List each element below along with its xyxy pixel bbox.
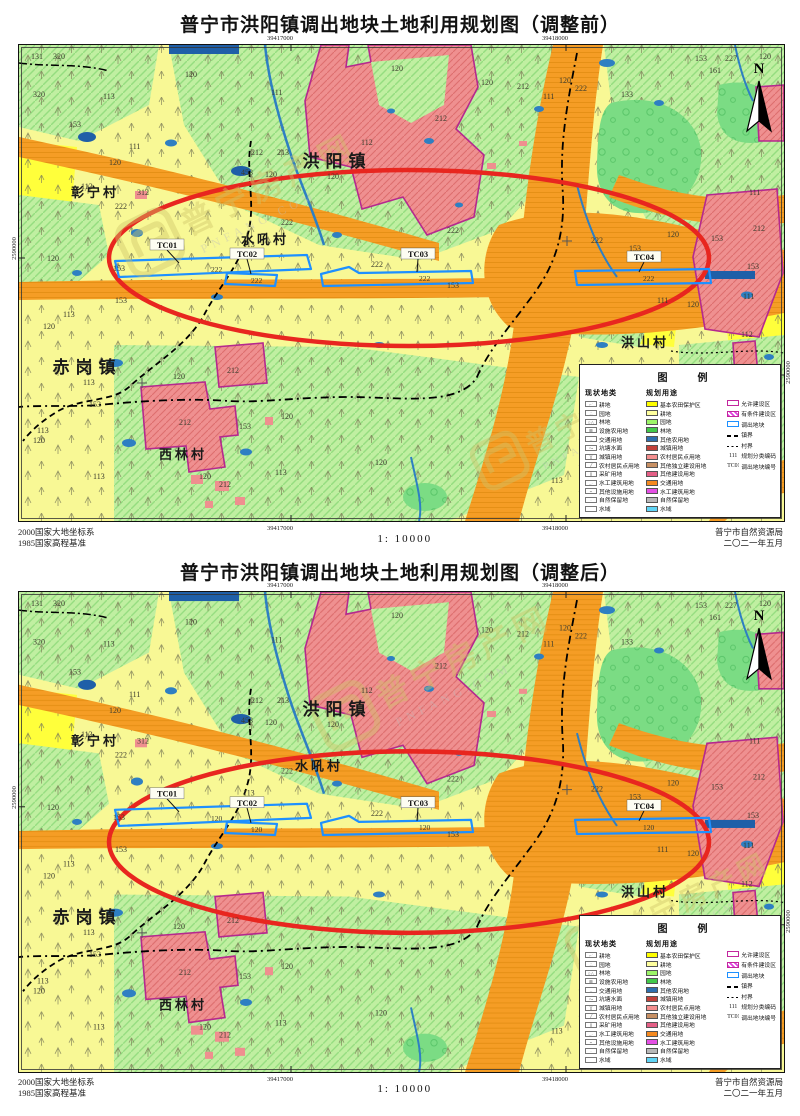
- svg-text:312: 312: [137, 736, 149, 745]
- planned-swatch: [646, 488, 658, 494]
- svg-text:111: 111: [743, 292, 754, 301]
- svg-text:212: 212: [251, 148, 263, 157]
- svg-text:113: 113: [37, 426, 49, 435]
- legend-item: ⌐˙耕地: [585, 400, 642, 409]
- planned-swatch: [646, 987, 658, 993]
- current-swatch: 〜: [585, 445, 597, 451]
- map2-title: 普宁市洪阳镇调出地块土地利用规划图（调整后）: [0, 558, 800, 585]
- svg-text:TC03: TC03: [408, 249, 428, 259]
- svg-text:120: 120: [281, 412, 293, 421]
- svg-text:113: 113: [63, 310, 75, 319]
- map1-footer: 2000国家大地坐标系1985国家高程基准 1: 10000 普宁市自然资源局二…: [18, 527, 783, 557]
- svg-text:212: 212: [435, 114, 447, 123]
- svg-text:153: 153: [115, 845, 127, 854]
- svg-text:111: 111: [657, 296, 668, 305]
- legend-item: 其他建设用地: [646, 470, 723, 479]
- legend-item: 园地: [646, 417, 723, 426]
- legend-item: 111规划分类编码: [727, 451, 776, 462]
- legend-item: ∴园地: [585, 960, 642, 969]
- legend-item: 调出地块: [727, 419, 776, 430]
- legend-item: ⌁其他设施用地: [585, 487, 642, 496]
- planned-swatch: [646, 1022, 658, 1028]
- svg-text:113: 113: [275, 1019, 287, 1028]
- outplot-swatch: [727, 421, 739, 427]
- planned-swatch: [646, 454, 658, 460]
- svg-text:227: 227: [725, 54, 737, 63]
- legend-item: 其他农用地: [646, 435, 723, 444]
- legend-item: –·水工建筑用地: [585, 478, 642, 487]
- planned-swatch: [646, 970, 658, 976]
- legend-item: 村界: [727, 440, 776, 451]
- current-swatch: ⌐˙: [585, 952, 597, 958]
- svg-text:120: 120: [687, 300, 699, 309]
- current-swatch: [585, 1057, 597, 1063]
- svg-text:113: 113: [243, 789, 255, 798]
- svg-text:120: 120: [185, 70, 197, 79]
- legend-item: 水域: [646, 504, 723, 513]
- planned-swatch: [646, 961, 658, 967]
- svg-text:TC01: TC01: [157, 789, 177, 799]
- planned-swatch: [646, 401, 658, 407]
- legend-code: TC01: [727, 463, 739, 469]
- svg-text:113: 113: [83, 378, 95, 387]
- svg-text:227: 227: [725, 601, 737, 610]
- legend-title: 图 例: [599, 369, 776, 384]
- svg-text:120: 120: [559, 76, 571, 85]
- svg-text:212: 212: [753, 773, 765, 782]
- svg-text:222: 222: [643, 274, 655, 283]
- current-swatch: ⌁: [585, 488, 597, 494]
- svg-text:113: 113: [63, 859, 75, 868]
- planned-swatch: [646, 480, 658, 486]
- svg-text:320: 320: [53, 52, 65, 61]
- current-swatch: ○△: [585, 419, 597, 425]
- svg-text:111: 111: [271, 88, 282, 97]
- legend-item: ○△林地: [585, 417, 642, 426]
- current-swatch: ∴: [585, 410, 597, 416]
- svg-text:120: 120: [667, 230, 679, 239]
- current-swatch: ⊞: [585, 427, 597, 433]
- svg-text:212: 212: [179, 968, 191, 977]
- svg-text:113: 113: [83, 928, 95, 937]
- legend-item: 其他独立建设用地: [646, 1012, 723, 1021]
- current-swatch: –: [585, 987, 597, 993]
- svg-text:120: 120: [185, 617, 197, 626]
- coord-y-right: 2590000: [785, 361, 792, 384]
- svg-text:120: 120: [211, 814, 222, 823]
- svg-text:120: 120: [199, 472, 211, 481]
- svg-text:120: 120: [559, 623, 571, 632]
- svg-text:洪山村: 洪山村: [621, 884, 669, 899]
- svg-text:120: 120: [47, 254, 59, 263]
- legend-title: 图 例: [599, 920, 776, 935]
- svg-text:153: 153: [695, 54, 707, 63]
- village-boundary-swatch: [727, 997, 739, 998]
- svg-text:153: 153: [89, 950, 101, 959]
- svg-text:西林村: 西林村: [159, 997, 207, 1012]
- coord-x-left-top: 39417000: [267, 582, 293, 589]
- svg-text:120: 120: [419, 823, 430, 832]
- svg-text:111: 111: [749, 188, 760, 197]
- legend-item: 林地: [646, 977, 723, 986]
- coord-y-left: 2590000: [11, 786, 18, 809]
- legend-box: 图 例现状地类⌐˙耕地∴园地○△林地⊞设施农用地–交通用地〜坑塘水面╳城镇用地╱…: [579, 915, 781, 1069]
- svg-text:312: 312: [137, 188, 149, 197]
- svg-text:153: 153: [711, 783, 723, 792]
- svg-text:222: 222: [447, 775, 459, 784]
- svg-text:111: 111: [657, 845, 668, 854]
- svg-text:213: 213: [277, 696, 289, 705]
- svg-text:N: N: [754, 608, 765, 624]
- legend-item: 交通用地: [646, 1029, 723, 1038]
- legend-box: 图 例现状地类⌐˙耕地∴园地○△林地⊞设施农用地–交通用地〜坑塘水面╳城镇用地╱…: [579, 364, 781, 518]
- scale-text: 1: 10000: [377, 1083, 432, 1095]
- legend-item: ·自然保留地: [585, 1047, 642, 1056]
- legend-item: ∥采矿用地: [585, 470, 642, 479]
- current-swatch: ╱: [585, 462, 597, 468]
- svg-text:水吼村: 水吼村: [241, 232, 289, 247]
- legend-item: 水域: [585, 1055, 642, 1064]
- svg-text:TC04: TC04: [634, 252, 655, 262]
- svg-text:111: 111: [543, 639, 554, 648]
- legend-item: ∴园地: [585, 409, 642, 418]
- svg-text:赤岗镇: 赤岗镇: [53, 907, 122, 927]
- svg-text:120: 120: [759, 599, 771, 608]
- svg-text:453: 453: [241, 716, 253, 725]
- legend-item: 交通用地: [646, 478, 723, 487]
- svg-text:212: 212: [227, 916, 239, 925]
- svg-text:西林村: 西林村: [159, 447, 207, 462]
- legend-item: 基本农田保护区: [646, 400, 723, 409]
- svg-text:彰宁村: 彰宁村: [71, 185, 119, 200]
- scale-text: 1: 10000: [377, 533, 432, 545]
- svg-text:120: 120: [759, 52, 771, 61]
- planned-swatch: [646, 506, 658, 512]
- svg-text:111: 111: [129, 142, 140, 151]
- svg-text:赤岗镇: 赤岗镇: [53, 357, 122, 377]
- planned-swatch: [646, 1048, 658, 1054]
- svg-text:120: 120: [667, 779, 679, 788]
- legend-item: TC01调出地块编号: [727, 461, 776, 472]
- svg-text:222: 222: [591, 785, 603, 794]
- planned-swatch: [646, 436, 658, 442]
- legend-item: 〜坑塘水面: [585, 444, 642, 453]
- svg-text:320: 320: [33, 637, 45, 646]
- svg-text:113: 113: [103, 639, 115, 648]
- planned-swatch: [646, 1005, 658, 1011]
- svg-text:111: 111: [749, 736, 760, 745]
- svg-text:213: 213: [277, 148, 289, 157]
- svg-text:120: 120: [481, 625, 493, 634]
- legend-code: 111: [727, 1004, 739, 1010]
- svg-text:120: 120: [251, 825, 262, 834]
- svg-text:TC03: TC03: [408, 798, 428, 808]
- current-swatch: ⌁: [585, 1039, 597, 1045]
- map1-frame: 222222222222普宁房产网PNFANG.COM普宁房产网PNFANG.C…: [18, 44, 785, 522]
- legend-item: 镇界: [727, 981, 776, 992]
- town-boundary-swatch: [727, 435, 739, 437]
- svg-text:N: N: [754, 61, 765, 77]
- coord-y-right: 2590000: [785, 911, 792, 934]
- legend-planned-header: 规划用途: [646, 388, 723, 398]
- svg-text:洪阳镇: 洪阳镇: [303, 699, 372, 719]
- svg-text:113: 113: [551, 476, 563, 485]
- legend-item: 有条件建设区: [727, 960, 776, 971]
- svg-text:111: 111: [271, 635, 282, 644]
- agency-text: 普宁市自然资源局二〇二一年五月: [715, 527, 783, 549]
- svg-text:212: 212: [227, 366, 239, 375]
- legend-item: 林地: [646, 426, 723, 435]
- legend-item: 〜坑塘水面: [585, 995, 642, 1004]
- svg-text:153: 153: [69, 120, 81, 129]
- svg-text:212: 212: [517, 629, 529, 638]
- legend-item: –交通用地: [585, 435, 642, 444]
- svg-text:120: 120: [47, 803, 59, 812]
- planned-swatch: [646, 497, 658, 503]
- svg-text:120: 120: [43, 322, 55, 331]
- legend-item: 111规划分类编码: [727, 1002, 776, 1013]
- planned-swatch: [646, 427, 658, 433]
- legend-item: 水工建筑用地: [646, 487, 723, 496]
- svg-text:153: 153: [747, 811, 759, 820]
- svg-text:111: 111: [129, 690, 140, 699]
- datum-text: 2000国家大地坐标系1985国家高程基准: [18, 527, 95, 549]
- svg-text:222: 222: [371, 260, 383, 269]
- legend-item: 村界: [727, 991, 776, 1002]
- legend-item: 调出地块: [727, 970, 776, 981]
- svg-text:320: 320: [33, 90, 45, 99]
- svg-text:120: 120: [43, 871, 55, 880]
- svg-text:120: 120: [265, 718, 277, 727]
- svg-text:113: 113: [275, 468, 287, 477]
- conditional-swatch: [727, 411, 739, 417]
- legend-item: 允许建设区: [727, 949, 776, 960]
- svg-text:113: 113: [93, 472, 105, 481]
- legend-item: 耕地: [646, 409, 723, 418]
- coord-x-right-top: 39418000: [542, 582, 568, 589]
- svg-text:222: 222: [419, 274, 431, 283]
- svg-text:120: 120: [281, 962, 293, 971]
- svg-text:111: 111: [743, 841, 754, 850]
- current-swatch: ⊞: [585, 978, 597, 984]
- legend-item: 园地: [646, 968, 723, 977]
- svg-text:222: 222: [211, 265, 223, 274]
- svg-text:113: 113: [551, 1027, 563, 1036]
- svg-text:153: 153: [747, 262, 759, 271]
- legend-item: ⌐˙耕地: [585, 951, 642, 960]
- svg-text:112: 112: [361, 686, 373, 695]
- svg-text:212: 212: [179, 418, 191, 427]
- legend-item: 其他建设用地: [646, 1021, 723, 1030]
- legend-current-header: 现状地类: [585, 939, 642, 949]
- legend-item: 有条件建设区: [727, 409, 776, 420]
- legend-item: 基本农田保护区: [646, 951, 723, 960]
- svg-text:洪阳镇: 洪阳镇: [303, 151, 372, 171]
- legend-item: ○△林地: [585, 968, 642, 977]
- current-swatch: ·: [585, 1048, 597, 1054]
- svg-text:153: 153: [113, 813, 125, 822]
- agency-text: 普宁市自然资源局二〇二一年五月: [715, 1077, 783, 1099]
- legend-item: 城镇用地: [646, 995, 723, 1004]
- current-swatch: ∴: [585, 961, 597, 967]
- svg-text:彰宁村: 彰宁村: [71, 733, 119, 748]
- svg-text:TC04: TC04: [634, 801, 655, 811]
- legend-code: 111: [727, 453, 739, 459]
- legend-item: ╱农村居民点用地: [585, 1012, 642, 1021]
- svg-text:120: 120: [33, 436, 45, 445]
- svg-text:120: 120: [109, 158, 121, 167]
- legend-item: –·水工建筑用地: [585, 1029, 642, 1038]
- svg-text:133: 133: [621, 637, 633, 646]
- legend-planned-header: 规划用途: [646, 939, 723, 949]
- svg-text:120: 120: [327, 172, 339, 181]
- svg-text:TC01: TC01: [157, 240, 177, 250]
- svg-text:212: 212: [517, 82, 529, 91]
- current-swatch: –·: [585, 480, 597, 486]
- allowed-swatch: [727, 951, 739, 957]
- svg-text:222: 222: [115, 202, 127, 211]
- current-swatch: 〜: [585, 996, 597, 1002]
- svg-text:153: 153: [239, 422, 251, 431]
- svg-text:120: 120: [375, 1009, 387, 1018]
- current-swatch: ○△: [585, 970, 597, 976]
- svg-text:131: 131: [31, 52, 43, 61]
- svg-text:153: 153: [447, 830, 459, 839]
- svg-text:222: 222: [447, 226, 459, 235]
- legend-current-header: 现状地类: [585, 388, 642, 398]
- svg-text:120: 120: [375, 458, 387, 467]
- svg-text:120: 120: [109, 706, 121, 715]
- map2-frame: 120120120120普宁房产网PNFANG.COM普宁房产网PNFANG.C…: [18, 591, 785, 1073]
- legend-item: ·自然保留地: [585, 496, 642, 505]
- svg-text:161: 161: [709, 66, 721, 75]
- svg-text:222: 222: [251, 276, 263, 285]
- svg-text:113: 113: [93, 1023, 105, 1032]
- legend-item: ⊞设施农用地: [585, 977, 642, 986]
- svg-text:153: 153: [447, 281, 459, 290]
- svg-text:212: 212: [219, 1031, 231, 1040]
- svg-text:153: 153: [711, 234, 723, 243]
- svg-text:120: 120: [643, 823, 654, 832]
- svg-text:153: 153: [239, 972, 251, 981]
- town-boundary-swatch: [727, 986, 739, 988]
- planned-swatch: [646, 1057, 658, 1063]
- svg-text:120: 120: [199, 1023, 211, 1032]
- map1-title: 普宁市洪阳镇调出地块土地利用规划图（调整前）: [0, 10, 800, 37]
- coord-x-left-top: 39417000: [267, 35, 293, 42]
- map2-footer: 2000国家大地坐标系1985国家高程基准 1: 10000 普宁市自然资源局二…: [18, 1077, 783, 1107]
- svg-text:水吼村: 水吼村: [295, 758, 343, 773]
- svg-text:222: 222: [281, 766, 293, 775]
- svg-text:153: 153: [115, 296, 127, 305]
- allowed-swatch: [727, 400, 739, 406]
- coord-y-left: 2590000: [11, 237, 18, 260]
- legend-item: –交通用地: [585, 986, 642, 995]
- legend-item: 水工建筑用地: [646, 1038, 723, 1047]
- current-swatch: ╱: [585, 1013, 597, 1019]
- conditional-swatch: [727, 962, 739, 968]
- svg-text:153: 153: [695, 601, 707, 610]
- svg-text:133: 133: [621, 90, 633, 99]
- svg-text:120: 120: [391, 64, 403, 73]
- legend-code: TC01: [727, 1014, 739, 1020]
- legend-item: 农村居民点用地: [646, 452, 723, 461]
- svg-text:TC02: TC02: [237, 249, 257, 259]
- planned-swatch: [646, 978, 658, 984]
- legend-item: ∥采矿用地: [585, 1021, 642, 1030]
- legend-item: ⊞设施农用地: [585, 426, 642, 435]
- svg-text:153: 153: [113, 264, 125, 273]
- current-swatch: [585, 506, 597, 512]
- svg-text:120: 120: [327, 720, 339, 729]
- coord-x-right-top: 39418000: [542, 35, 568, 42]
- svg-text:222: 222: [281, 218, 293, 227]
- planned-swatch: [646, 996, 658, 1002]
- legend-item: 城镇用地: [646, 444, 723, 453]
- legend-item: 允许建设区: [727, 398, 776, 409]
- svg-text:153: 153: [89, 400, 101, 409]
- svg-text:113: 113: [37, 976, 49, 985]
- svg-text:222: 222: [115, 750, 127, 759]
- legend-item: 其他独立建设用地: [646, 461, 723, 470]
- current-swatch: ·: [585, 497, 597, 503]
- svg-text:120: 120: [33, 986, 45, 995]
- svg-text:212: 212: [251, 696, 263, 705]
- outplot-swatch: [727, 972, 739, 978]
- planned-swatch: [646, 445, 658, 451]
- legend-item: 水域: [646, 1055, 723, 1064]
- svg-text:120: 120: [687, 849, 699, 858]
- svg-text:212: 212: [219, 480, 231, 489]
- svg-text:113: 113: [103, 92, 115, 101]
- svg-text:222: 222: [371, 809, 383, 818]
- current-swatch: –·: [585, 1031, 597, 1037]
- document-page: 普宁市洪阳镇调出地块土地利用规划图（调整前） 222222222222普宁房产网…: [0, 0, 800, 1116]
- svg-text:112: 112: [361, 138, 373, 147]
- datum-text: 2000国家大地坐标系1985国家高程基准: [18, 1077, 95, 1099]
- svg-text:洪山村: 洪山村: [621, 335, 669, 350]
- legend-item: 自然保留地: [646, 1047, 723, 1056]
- svg-text:153: 153: [69, 668, 81, 677]
- svg-text:161: 161: [709, 613, 721, 622]
- svg-text:320: 320: [53, 599, 65, 608]
- current-swatch: ╳: [585, 454, 597, 460]
- svg-text:453: 453: [241, 168, 253, 177]
- legend-item: ⌁其他设施用地: [585, 1038, 642, 1047]
- legend-item: 耕地: [646, 960, 723, 969]
- svg-text:120: 120: [391, 611, 403, 620]
- planned-swatch: [646, 419, 658, 425]
- planned-swatch: [646, 1031, 658, 1037]
- svg-text:120: 120: [265, 170, 277, 179]
- current-swatch: ⌐˙: [585, 401, 597, 407]
- svg-text:111: 111: [543, 92, 554, 101]
- current-swatch: ∥: [585, 1022, 597, 1028]
- svg-text:212: 212: [435, 662, 447, 671]
- planned-swatch: [646, 410, 658, 416]
- svg-text:120: 120: [481, 78, 493, 87]
- legend-item: ╱农村居民点用地: [585, 461, 642, 470]
- svg-text:131: 131: [31, 599, 43, 608]
- planned-swatch: [646, 471, 658, 477]
- svg-text:222: 222: [591, 236, 603, 245]
- current-swatch: –: [585, 436, 597, 442]
- svg-text:222: 222: [575, 84, 587, 93]
- legend-item: 农村居民点用地: [646, 1003, 723, 1012]
- legend-item: 自然保留地: [646, 496, 723, 505]
- current-swatch: ╳: [585, 1005, 597, 1011]
- planned-swatch: [646, 462, 658, 468]
